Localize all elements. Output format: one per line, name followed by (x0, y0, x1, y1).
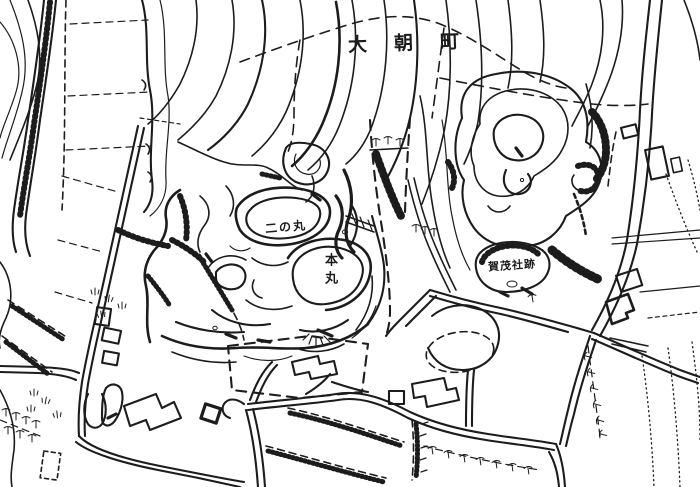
levee-with-hatching (13, 0, 56, 256)
contours-south-base (172, 306, 376, 363)
topographic-map-drawing (0, 0, 700, 487)
cliff-hatch-bands-east-hill (448, 112, 606, 280)
map-canvas: 大朝町 二の丸 本丸 賀茂社跡 (0, 0, 700, 487)
road-west-diagonal (0, 126, 265, 487)
paddy-parcel-rows (266, 408, 428, 482)
east-hill-contours (455, 72, 601, 248)
dotted-paddy-rows-east (642, 160, 700, 487)
buildings (40, 124, 682, 480)
road-northeast (592, 0, 700, 336)
stream-center-left (140, 0, 180, 216)
shrine-site-terrace (476, 242, 550, 303)
